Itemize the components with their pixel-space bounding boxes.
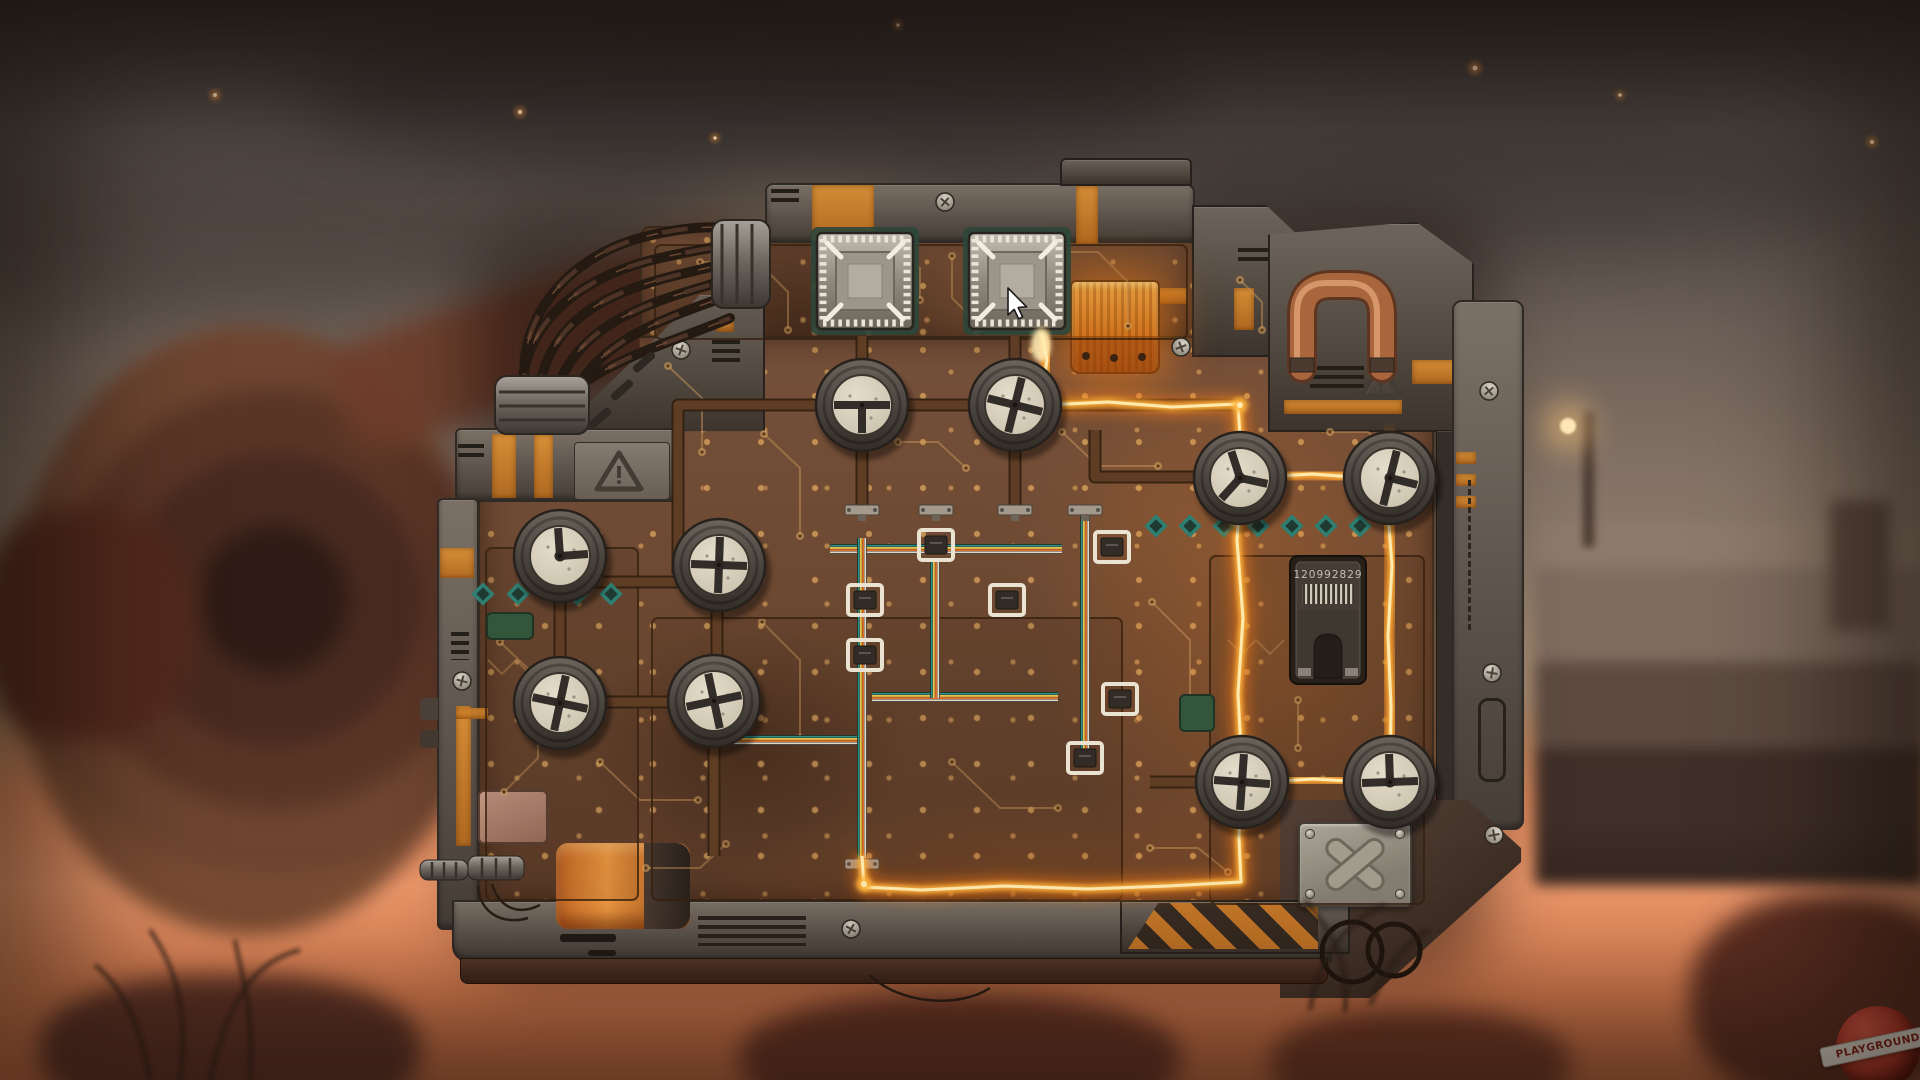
orange-patch bbox=[716, 318, 734, 332]
playground-watermark: PLAYGROUND bbox=[1836, 1006, 1920, 1080]
vent-slots bbox=[451, 632, 469, 660]
orange-dash bbox=[1456, 496, 1476, 508]
game-screenshot: 120992829 PLAYGROUND bbox=[0, 0, 1920, 1080]
vent-slots bbox=[712, 340, 740, 362]
bottom-edge-bar bbox=[460, 958, 1328, 984]
frame-slot bbox=[560, 934, 616, 942]
edge-nub bbox=[420, 698, 438, 720]
vent-slots bbox=[458, 444, 484, 462]
orange-stripe bbox=[1076, 186, 1098, 244]
orange-stripe bbox=[1284, 400, 1402, 414]
hazard-stripes bbox=[1128, 903, 1318, 949]
frame-slot bbox=[588, 950, 616, 956]
vent-slots bbox=[1238, 248, 1270, 261]
vent-slats bbox=[698, 916, 806, 946]
orange-pipe bbox=[456, 706, 471, 846]
debris bbox=[0, 510, 190, 740]
ship-tower bbox=[1830, 500, 1890, 630]
orange-dash bbox=[1456, 452, 1476, 464]
orange-pipe-stub bbox=[456, 708, 488, 719]
orange-patch bbox=[440, 548, 474, 578]
bottom-left-plate bbox=[478, 790, 548, 844]
orange-patch bbox=[1156, 288, 1188, 304]
top-housing-step bbox=[1060, 158, 1192, 186]
frame-slot bbox=[1478, 698, 1506, 782]
edge-nub bbox=[420, 730, 438, 748]
vent-slots bbox=[771, 189, 799, 206]
orange-stripe bbox=[492, 434, 516, 498]
cylinder-cap bbox=[644, 843, 690, 929]
cloud bbox=[300, 10, 1200, 180]
orange-stripe bbox=[534, 434, 553, 498]
orange-dash bbox=[1456, 474, 1476, 486]
dashed-divider bbox=[1468, 480, 1471, 630]
warning-plate bbox=[574, 442, 670, 500]
power-cell-band bbox=[1070, 336, 1160, 374]
x-plate bbox=[1298, 822, 1412, 907]
orange-stripe bbox=[812, 185, 874, 241]
orange-stripe bbox=[1234, 288, 1254, 330]
mast-light bbox=[1560, 418, 1576, 434]
vent-slots bbox=[1310, 366, 1364, 392]
ship-mast bbox=[1583, 412, 1594, 547]
